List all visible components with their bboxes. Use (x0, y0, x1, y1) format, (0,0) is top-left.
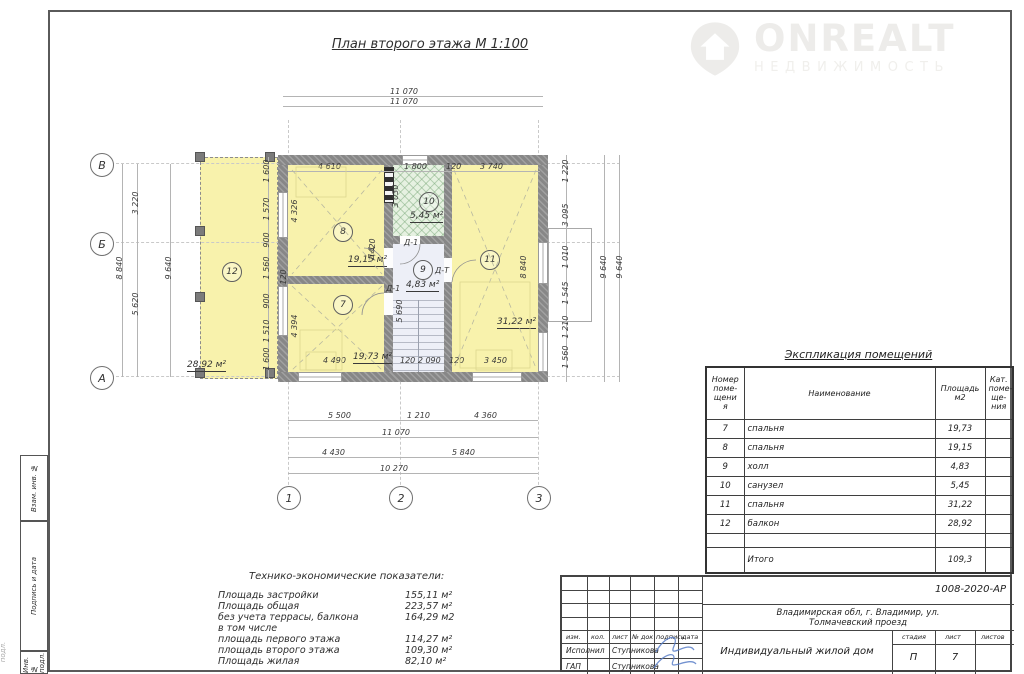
tech-label: площадь первого этажа (218, 634, 340, 645)
dim-label: 3 030 (392, 179, 400, 213)
dim-label: 9 640 (165, 251, 173, 285)
dim-label: 1 010 (562, 240, 570, 274)
door-label: Д-1 (386, 285, 400, 293)
dim-label: 1 600 (263, 342, 271, 376)
tech-value: 155,11 м² (405, 590, 452, 601)
room-area-label: 28,92 м² (187, 360, 226, 372)
dim-label: 3 220 (132, 186, 140, 220)
tech-label: Площадь общая (218, 601, 299, 612)
dim-label: 3 095 (562, 198, 570, 232)
dim-label: 9 640 (616, 250, 624, 284)
sidebox-label: Взам. инв. № (21, 456, 47, 520)
stamp-line (892, 644, 1014, 645)
stamp-role: ГАП (566, 663, 581, 671)
room-number-cell: 12 (706, 514, 744, 533)
dim-label: 120 (280, 260, 288, 294)
stamp-line (562, 590, 702, 591)
room-area-label: 31,22 м² (497, 317, 536, 329)
total-area-cell: 109,3 (935, 547, 985, 573)
room-cat-cell (985, 457, 1013, 476)
room-area-cell: 4,83 (935, 457, 985, 476)
room-number-cell: 7 (706, 419, 744, 438)
project-name: Индивидуальный жилой дом (702, 647, 892, 657)
room-area-cell: 5,45 (935, 476, 985, 495)
dim-label: 120 (449, 357, 464, 365)
room-cat-cell (985, 495, 1013, 514)
dim-label: 5 500 (328, 412, 351, 420)
dim-label: 4 490 (323, 357, 346, 365)
stamp-line (562, 617, 702, 618)
window (298, 372, 342, 382)
title-block: изм. кол. лист № док подпись дата Исполн… (560, 575, 1012, 672)
stamp-role: Исполнил (566, 647, 605, 655)
window (278, 192, 288, 238)
room-cat-cell (985, 514, 1013, 533)
window (472, 372, 522, 382)
room-name-cell: спальня (744, 495, 935, 514)
dim-label: 1 220 (562, 154, 570, 188)
stamp-line (892, 630, 893, 674)
room-area-label: 5,45 м² (410, 211, 443, 223)
dim-line (288, 171, 540, 172)
tech-label: площадь второго этажа (218, 645, 340, 656)
dim-label: 1 600 (263, 154, 271, 188)
dim-label: 4 360 (474, 412, 497, 420)
stamp-line (975, 630, 976, 674)
axis-marker-col: 2 (389, 486, 413, 510)
dim-label: 5 620 (132, 287, 140, 321)
stage-label: стадия (902, 634, 926, 641)
axis-marker-col: 1 (277, 486, 301, 510)
watermark-brand: ONREALT (754, 20, 956, 57)
stamp-line (609, 577, 610, 674)
stamp-line (654, 577, 655, 674)
axis-marker-row: А (90, 366, 114, 390)
edge-label: подл. (0, 635, 7, 669)
room-area-cell: 28,92 (935, 514, 985, 533)
balcony-post (195, 292, 205, 302)
stamp-line (562, 643, 702, 644)
table-row: 12 балкон 28,92 (706, 514, 1013, 533)
room-area-label: 4,83 м² (406, 280, 439, 292)
sheet-value: 7 (935, 653, 975, 663)
dim-line (288, 437, 538, 438)
room-number-cell: 8 (706, 438, 744, 457)
dim-line (283, 106, 543, 107)
dim-label: 900 (263, 284, 271, 318)
sidebox-podpis: Подпись и дата (20, 521, 48, 651)
dim-label: 1 560 (263, 251, 271, 285)
dim-label: 120 (446, 163, 461, 171)
dim-label: 4 326 (291, 194, 299, 228)
room-number-cell: 11 (706, 495, 744, 514)
dim-line (288, 420, 538, 421)
empty-cell (985, 533, 1013, 547)
tech-value: 223,57 м² (405, 601, 452, 612)
col-header-area: Площадь м2 (935, 367, 985, 419)
room-name-cell: спальня (744, 438, 935, 457)
explication-title: Экспликация помещений (705, 348, 1012, 361)
dim-label: 5 690 (396, 294, 404, 328)
dim-label: 11 070 (382, 429, 410, 437)
stamp-col-header: дата (682, 634, 698, 641)
col-header-number: Номер поме- щени я (706, 367, 744, 419)
tech-label: без учета террасы, балкона (218, 612, 359, 623)
axis-marker-col: 3 (527, 486, 551, 510)
watermark: ONREALT НЕДВИЖИМОСТЬ (686, 20, 956, 82)
axis-marker-row: Б (90, 232, 114, 256)
room-number: 9 (413, 260, 433, 280)
dim-label: 4 610 (318, 163, 341, 171)
wall-rooms-7-8 (288, 276, 384, 284)
door-opening (384, 293, 393, 315)
dim-label: 8 840 (520, 250, 528, 284)
dim-line (288, 473, 538, 474)
stamp-line (562, 603, 702, 604)
balcony-post (195, 226, 205, 236)
dim-label: 120 2 090 (400, 357, 441, 365)
room-name-cell: холл (744, 457, 935, 476)
dim-label: 5 840 (452, 449, 475, 457)
window (538, 242, 548, 284)
sidebox-inv: Инв. № подл. (20, 651, 48, 674)
plan-title: План второго этажа М 1:100 (300, 37, 560, 52)
room-area-cell: 19,73 (935, 419, 985, 438)
watermark-subtitle: НЕДВИЖИМОСТЬ (754, 60, 956, 75)
dim-label: 1 560 (562, 340, 570, 374)
dim-label: 11 070 (390, 88, 418, 96)
dim-label: 420 (369, 236, 377, 256)
room-area-cell: 19,15 (935, 438, 985, 457)
empty-cell (706, 547, 744, 573)
object-address: Владимирская обл, г. Владимир, ул. Толма… (702, 608, 1014, 628)
sidebox-label: Инв. № подл. (21, 652, 47, 673)
sheet-label: лист (945, 634, 961, 641)
tech-label: Площадь жилая (218, 656, 299, 667)
dim-label: 1 570 (263, 192, 271, 226)
tech-label: в том числе (218, 623, 277, 634)
dim-label: 3 450 (484, 357, 507, 365)
empty-cell (744, 533, 935, 547)
empty-cell (935, 533, 985, 547)
room-name-cell: балкон (744, 514, 935, 533)
room-area-cell: 31,22 (935, 495, 985, 514)
stamp-line (562, 630, 1014, 631)
dim-label: 8 840 (116, 251, 124, 285)
table-row-empty (706, 533, 1013, 547)
explication-table: Номер поме- щени я Наименование Площадь … (705, 366, 1014, 574)
stamp-line (562, 658, 702, 659)
room-area-label: 19,73 м² (353, 352, 392, 364)
empty-cell (706, 533, 744, 547)
tech-indicators-title: Технико-экономические показатели: (249, 571, 444, 582)
col-header-name: Наименование (744, 367, 935, 419)
room-name-cell: санузел (744, 476, 935, 495)
table-row: 8 спальня 19,15 (706, 438, 1013, 457)
table-row-total: Итого 109,3 (706, 547, 1013, 573)
door-label: Д-Т (435, 267, 449, 275)
dim-label: 1 210 (562, 310, 570, 344)
room-cat-cell (985, 476, 1013, 495)
col-header-cat: Кат. поме- ще- ния (985, 367, 1013, 419)
sidebox-vzam: Взам. инв. № (20, 455, 48, 521)
room-name-cell: спальня (744, 419, 935, 438)
stamp-name: Ступникова (612, 647, 659, 655)
dim-label: 11 070 (390, 98, 418, 106)
room-number-cell: 9 (706, 457, 744, 476)
dim-label: 3 740 (480, 163, 503, 171)
stamp-name: Ступникова (612, 663, 659, 671)
stamp-col-header: кол. (591, 634, 605, 641)
doc-number: 1008-2020-АР (702, 585, 1006, 595)
stamp-line (587, 577, 588, 674)
room-cat-cell (985, 438, 1013, 457)
stamp-col-header: лист (612, 634, 628, 641)
sheets-label: листов (981, 634, 1005, 641)
dim-label: 9 640 (600, 250, 608, 284)
dim-label: 1 545 (562, 276, 570, 310)
stamp-line (935, 630, 936, 674)
room-number: 8 (333, 222, 353, 242)
dim-label: 1 800 (404, 163, 427, 171)
tech-value: 109,30 м² (405, 645, 452, 656)
dim-label: 10 270 (380, 465, 408, 473)
tech-value: 164,29 м2 (405, 612, 454, 623)
door-label: Д-1 (404, 239, 418, 247)
stamp-col-header: № док (632, 634, 653, 641)
balcony-post (195, 152, 205, 162)
table-row: 10 санузел 5,45 (706, 476, 1013, 495)
dim-label: 4 394 (291, 309, 299, 343)
stamp-line (630, 577, 631, 674)
window (538, 332, 548, 372)
room-number: 12 (222, 262, 242, 282)
room-number: 7 (333, 295, 353, 315)
room-cat-cell (985, 419, 1013, 438)
empty-cell (985, 547, 1013, 573)
stamp-col-header: подпись (656, 634, 685, 641)
terrace-outline (548, 228, 592, 322)
dim-label: 4 430 (322, 449, 345, 457)
room-number: 10 (419, 192, 439, 212)
table-row: 7 спальня 19,73 (706, 419, 1013, 438)
onrealt-logo-icon (686, 20, 744, 82)
table-row: 9 холл 4,83 (706, 457, 1013, 476)
table-row: 11 спальня 31,22 (706, 495, 1013, 514)
sidebox-label: Подпись и дата (21, 522, 47, 650)
tech-value: 82,10 м² (405, 656, 446, 667)
tech-value: 114,27 м² (405, 634, 452, 645)
room-number: 11 (480, 250, 500, 270)
stage-value: П (892, 653, 935, 663)
room-number-cell: 10 (706, 476, 744, 495)
stamp-line (678, 577, 679, 674)
tech-label: Площадь застройки (218, 590, 319, 601)
axis-marker-row: В (90, 153, 114, 177)
total-label-cell: Итого (744, 547, 935, 573)
stamp-col-header: изм. (566, 634, 581, 641)
stamp-line (702, 604, 1014, 605)
dim-line (288, 457, 538, 458)
dim-label: 1 210 (407, 412, 430, 420)
